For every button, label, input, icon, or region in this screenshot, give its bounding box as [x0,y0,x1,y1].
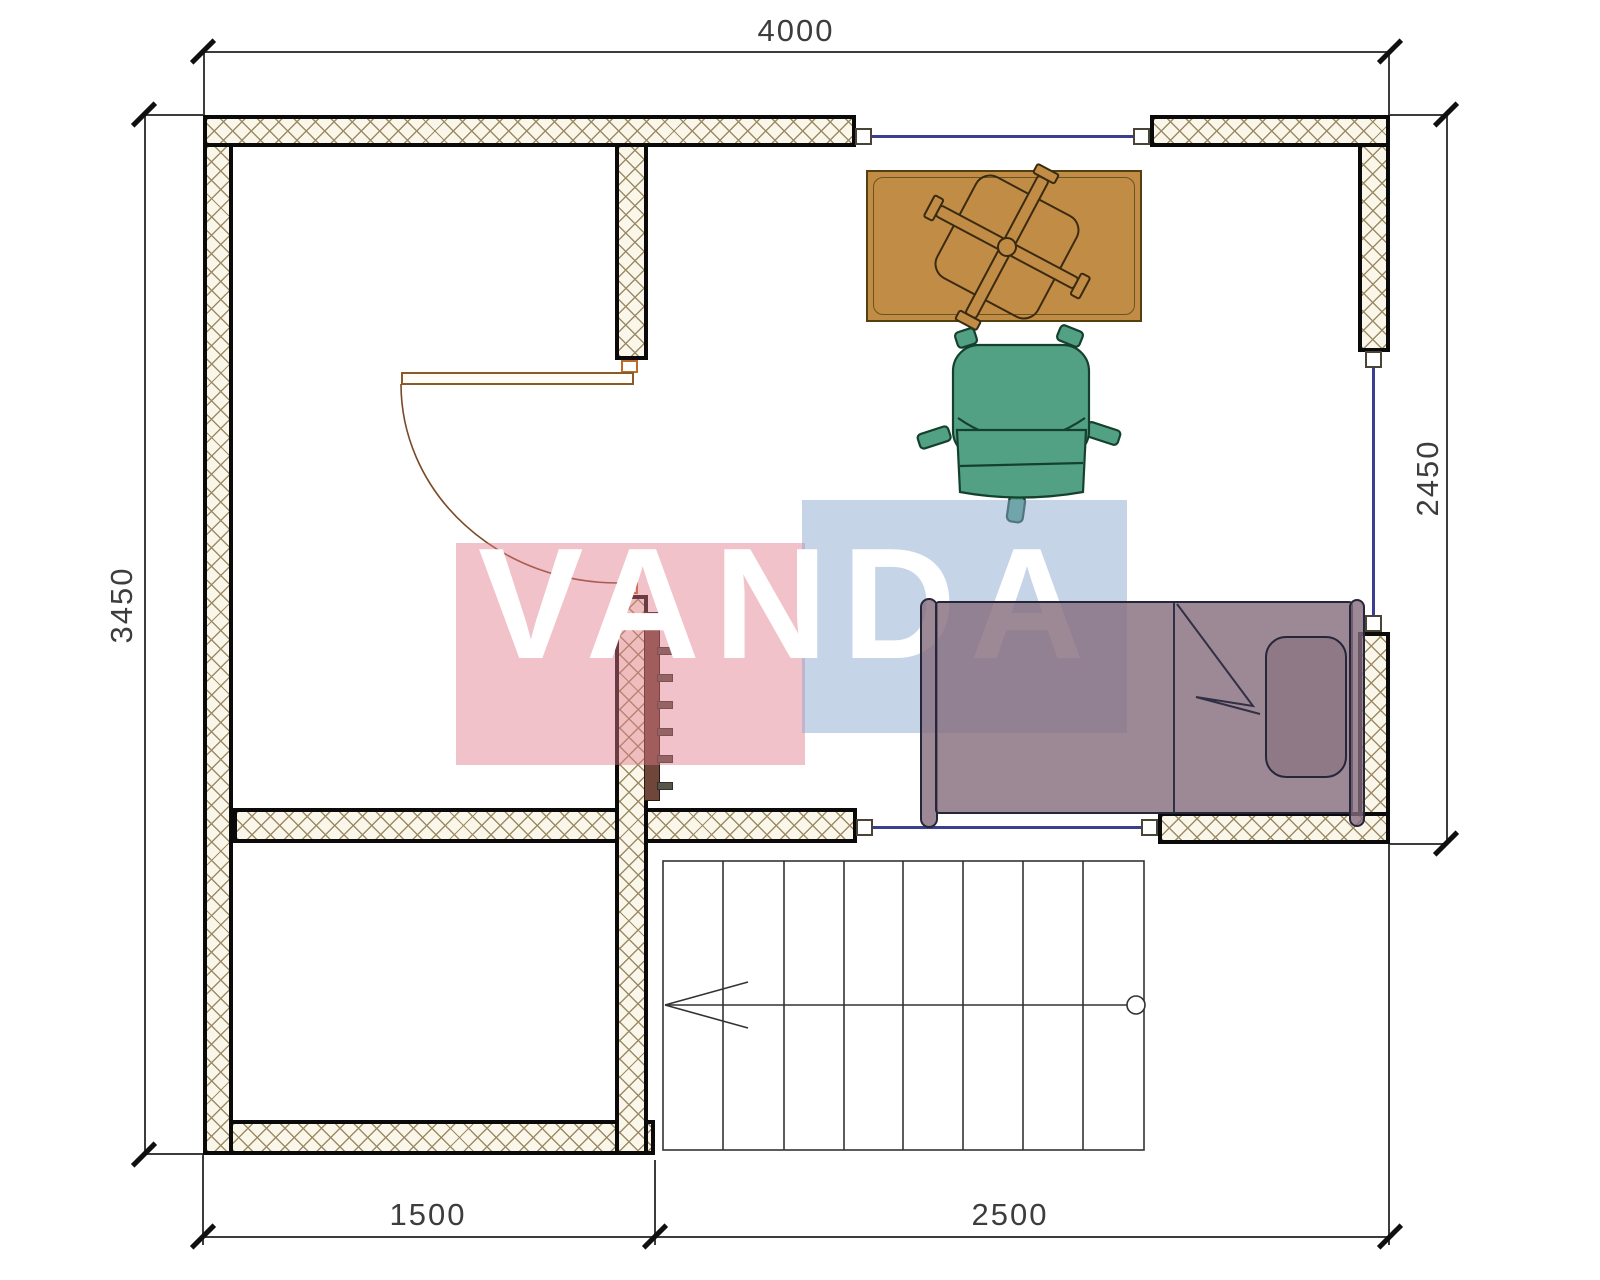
window-glass-bottom [873,826,1141,829]
dimension-line-top [203,51,1390,53]
dimension-label-bottom-left: 1500 [368,1198,488,1232]
window-glass-right [1372,368,1375,616]
stairs-direction-arrow [665,982,748,1028]
window-jamb [856,819,873,836]
chair-seat-edge [958,418,1085,440]
radiator-fin [657,782,673,790]
office-chair [917,324,1122,523]
extension-line [144,114,203,116]
bed-pillow [1266,637,1346,777]
chair-seat [953,345,1089,457]
wall-left [203,143,233,1155]
dimension-label-right: 2450 [1411,418,1445,538]
desk-inner-edge [873,177,1135,315]
chair-caster [1056,324,1084,348]
wall-top-right-horizontal [1150,115,1390,147]
wall-interior-upper-mid [615,143,648,360]
extension-line [1388,52,1390,115]
dimension-label-left: 3450 [105,545,139,665]
wall-bottom-right-horizontal [1158,812,1390,844]
chair-caster [1084,421,1121,446]
window-glass-top [872,135,1134,138]
dimension-line-right [1446,115,1448,844]
staircase [663,861,1145,1150]
chair-base-cushion [957,430,1086,498]
stairs-start-circle [1127,996,1145,1014]
window-jamb [1365,351,1382,368]
door-leaf [401,372,634,385]
dimension-line-bottom [203,1236,1390,1238]
wall-top-left [203,115,856,147]
dimension-label-top: 4000 [736,14,856,48]
wall-bottom [229,1120,655,1155]
extension-line [144,1153,203,1155]
extension-line [1388,844,1390,1245]
floor-plan-canvas: 4000 3450 2450 1500 2500 [0,0,1600,1280]
bed-blanket-fold [1177,604,1260,714]
window-jamb [1133,128,1150,145]
wall-interior-horizontal [233,808,857,843]
dimension-label-bottom-right: 2500 [950,1198,1070,1232]
desk [866,170,1142,322]
window-jamb [1141,819,1158,836]
wall-right-upper [1358,143,1390,352]
extension-line [203,52,205,115]
chair-caster [954,327,978,348]
dimension-line-left [144,115,146,1155]
chair-caster [917,425,952,449]
watermark-text: VANDA [478,524,1138,684]
window-jamb [855,128,872,145]
window-jamb [1365,615,1382,632]
